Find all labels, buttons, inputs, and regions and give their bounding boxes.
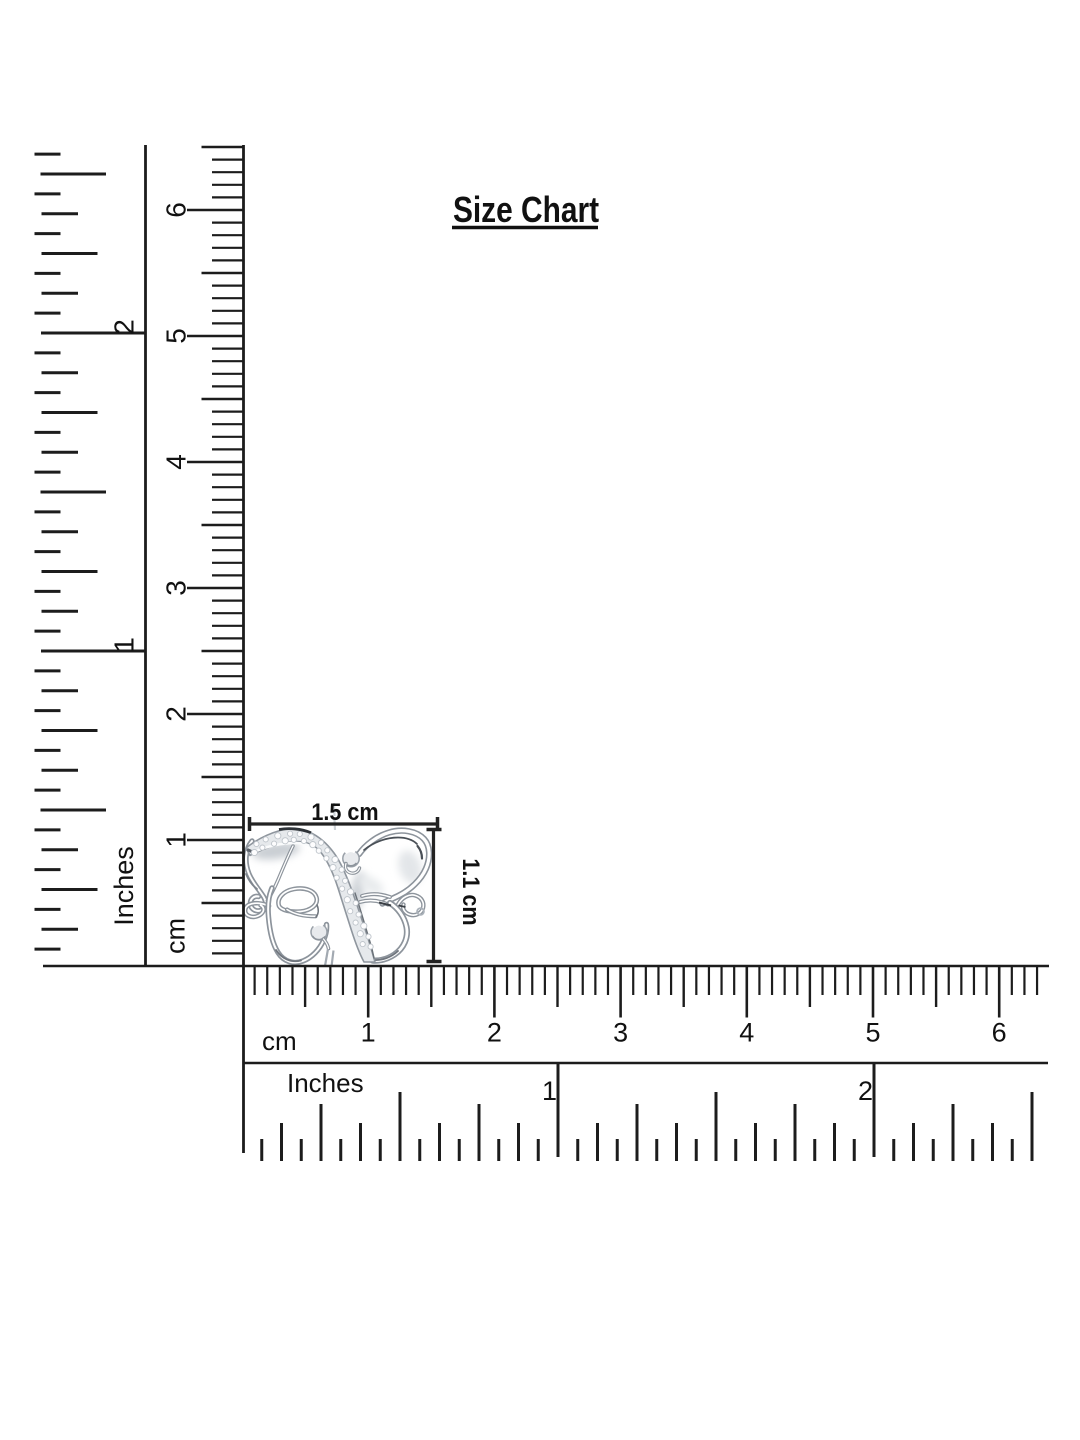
svg-text:1: 1 bbox=[161, 832, 192, 848]
svg-text:6: 6 bbox=[161, 202, 192, 218]
svg-text:1.5 cm: 1.5 cm bbox=[311, 798, 378, 825]
svg-text:1.1 cm: 1.1 cm bbox=[458, 858, 485, 925]
svg-text:3: 3 bbox=[161, 580, 192, 596]
svg-text:5: 5 bbox=[161, 328, 192, 344]
svg-text:2: 2 bbox=[109, 319, 140, 335]
svg-text:6: 6 bbox=[992, 1018, 1007, 1048]
svg-text:1: 1 bbox=[542, 1076, 557, 1106]
svg-text:2: 2 bbox=[487, 1018, 502, 1048]
svg-text:4: 4 bbox=[739, 1018, 754, 1048]
svg-text:3: 3 bbox=[613, 1018, 628, 1048]
svg-text:Inches: Inches bbox=[109, 846, 139, 926]
svg-text:4: 4 bbox=[161, 454, 192, 470]
svg-text:cm: cm bbox=[262, 1026, 297, 1056]
svg-text:2: 2 bbox=[858, 1076, 873, 1106]
svg-text:cm: cm bbox=[161, 918, 191, 954]
svg-text:1: 1 bbox=[109, 637, 140, 653]
svg-text:Size Chart: Size Chart bbox=[453, 190, 599, 230]
svg-text:Inches: Inches bbox=[287, 1068, 364, 1098]
svg-text:5: 5 bbox=[865, 1018, 880, 1048]
svg-text:2: 2 bbox=[161, 706, 192, 722]
svg-text:1: 1 bbox=[361, 1018, 376, 1048]
